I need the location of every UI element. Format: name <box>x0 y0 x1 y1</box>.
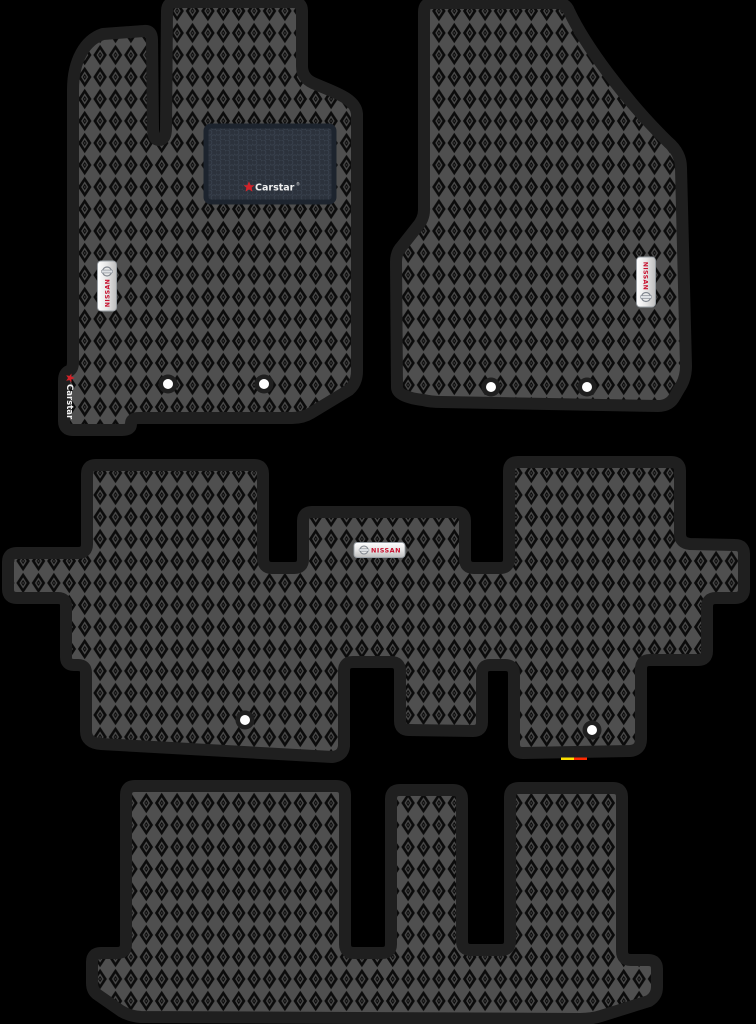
nissan-badge-text: NISSAN <box>105 279 112 307</box>
product-image: Carstar ® NISSAN Carstar <box>0 0 756 1024</box>
heel-pad: Carstar ® <box>206 126 334 202</box>
nissan-badge-driver: NISSAN <box>98 261 117 311</box>
nissan-emblem-icon <box>359 546 369 554</box>
nissan-badge-text: NISSAN <box>641 262 648 290</box>
nissan-badge-second-row: NISSAN <box>354 543 405 558</box>
nissan-badge-passenger: NISSAN <box>637 257 656 307</box>
nissan-badge-text: NISSAN <box>371 546 401 554</box>
fastener-hole <box>578 378 597 397</box>
carstar-heel-reg: ® <box>296 182 300 187</box>
watermark-artifact <box>561 758 587 761</box>
fastener-hole <box>583 721 602 740</box>
fastener-hole <box>255 375 274 394</box>
fastener-hole <box>159 375 178 394</box>
nissan-emblem-icon <box>640 293 651 302</box>
nissan-emblem-icon <box>101 267 112 276</box>
carstar-edge-text: Carstar <box>64 384 74 420</box>
floor-mats-photo: Carstar ® NISSAN Carstar <box>0 0 756 1024</box>
carstar-heel-text: Carstar <box>255 183 295 194</box>
fastener-hole <box>482 378 501 397</box>
fastener-hole <box>236 711 255 730</box>
